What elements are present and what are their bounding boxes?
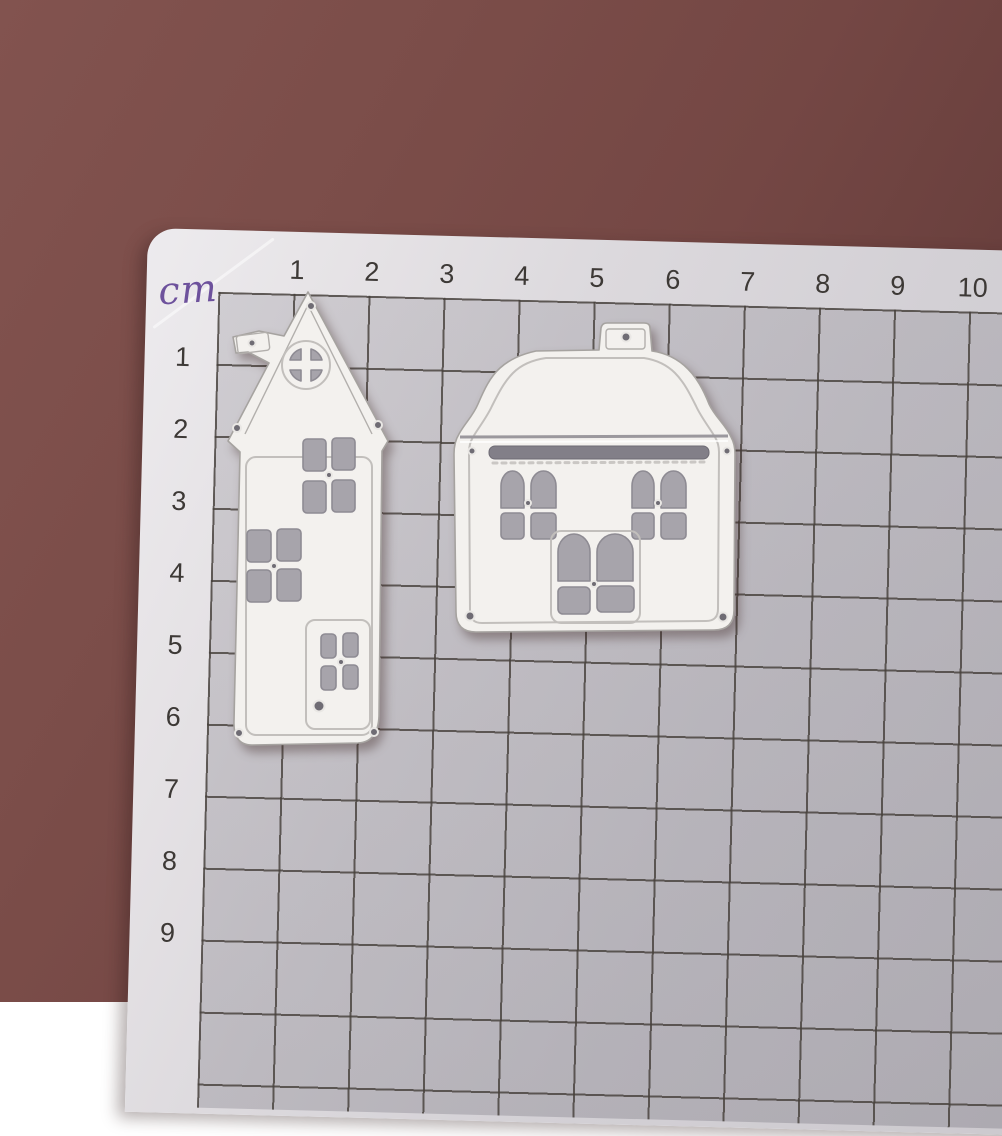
ruler-top-number: 10	[954, 271, 991, 304]
ruler-top-number: 3	[428, 257, 465, 290]
ruler-top-number: 8	[804, 267, 841, 300]
ruler-left-number: 3	[160, 484, 197, 517]
ruler-left-number: 7	[153, 772, 190, 805]
ruler-left-number: 8	[151, 844, 188, 877]
grid	[197, 292, 1002, 1130]
cutting-mat: cm 1 2 3 4 5 6 7 8 9 10 1 2 3 4 5 6 7 8 …	[125, 228, 1002, 1136]
ruler-top-number: 4	[503, 259, 540, 292]
ruler-left-number: 5	[157, 628, 194, 661]
ruler-left-number: 6	[155, 700, 192, 733]
ruler-top-number: 2	[354, 255, 391, 288]
product-photo: { "mat": { "unit_label": "cm", "ruler_to…	[0, 0, 1002, 1002]
ruler-left-number: 1	[164, 340, 201, 373]
ruler-top-number: 6	[654, 263, 691, 296]
ruler-top-number: 7	[729, 265, 766, 298]
ruler-top-number: 1	[279, 253, 316, 286]
ruler-top-number: 5	[578, 261, 615, 294]
ruler-left-number: 4	[159, 556, 196, 589]
ruler-left-number: 9	[149, 916, 186, 949]
ruler-top-number: 9	[879, 269, 916, 302]
ruler-left-number: 2	[162, 412, 199, 445]
